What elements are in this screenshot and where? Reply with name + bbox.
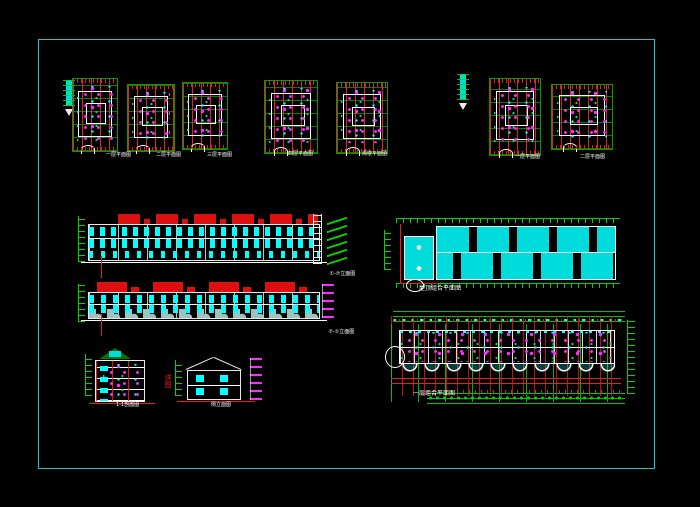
side-elevation-ruler — [175, 360, 182, 396]
bay-window-arc — [136, 145, 150, 154]
bay-window-arc — [385, 346, 405, 368]
front-elevation — [88, 214, 320, 266]
roof-slope-right — [214, 357, 242, 370]
cad-canvas[interactable]: 一层平面图 二层平面图 三层平面图 四层平面图 阁楼平面图 一层平面图 — [0, 0, 700, 507]
elevation-level-ruler — [78, 216, 85, 262]
wall-outline — [559, 95, 605, 136]
annotation-marks — [494, 87, 536, 145]
bay-window-arc — [346, 147, 360, 156]
dimension-line — [396, 218, 620, 223]
facade-windows — [88, 292, 320, 319]
plan-label-text: 二层平面图 — [580, 154, 605, 160]
roof-window — [109, 351, 121, 357]
plan-label-text: 一层平面图 — [106, 152, 131, 158]
floor-plan-7 — [551, 84, 613, 150]
side-facade — [187, 370, 241, 400]
annotation-marks — [269, 88, 313, 143]
elevation-label-text: ⑦-①立面图 — [329, 329, 355, 335]
annotation-marks — [401, 332, 613, 362]
wall-outline — [188, 94, 221, 136]
level-annotations — [327, 214, 347, 265]
wall-outline — [271, 93, 311, 139]
wall-outline — [496, 91, 534, 140]
plan-label-text: 三层平面图 — [207, 152, 232, 158]
room-partition — [281, 105, 305, 125]
ground-line — [81, 262, 327, 263]
roof-plan-label-text: 屋顶组合平面图 — [419, 285, 461, 292]
room-partition — [86, 103, 106, 123]
axis-grid-ladder — [313, 214, 322, 264]
section-drawing — [93, 348, 153, 406]
annotation-marks — [77, 86, 114, 141]
floor-plan-3 — [182, 82, 228, 150]
facade-windows — [88, 224, 320, 261]
plan-label-text: 四层平面图 — [288, 151, 313, 157]
section-cut-mark — [101, 256, 102, 278]
roof-plan — [392, 214, 622, 292]
room-partition — [196, 105, 216, 123]
elevation-label-text: ①-⑦立面图 — [330, 271, 356, 277]
balcony-arcs — [399, 364, 615, 376]
room-partition — [142, 107, 163, 125]
wall-outline — [343, 94, 381, 139]
dimension-text-stack — [322, 284, 334, 318]
rear-elevation — [88, 282, 320, 324]
bay-window-arc — [191, 143, 205, 152]
annotation-marks — [557, 91, 607, 140]
floor-plan-6 — [489, 78, 541, 156]
section-cut-mark — [101, 314, 102, 336]
roof-modules-lower — [436, 252, 616, 280]
bottom-dimension-rows — [427, 390, 625, 404]
roof-plan-ruler — [384, 230, 391, 270]
floor-plan-5 — [336, 82, 388, 154]
dimension-text-stack — [250, 358, 262, 400]
combined-plan-label-text: 一层组合平面图 — [413, 390, 455, 397]
north-arrow-icon — [459, 103, 467, 114]
ground-line — [81, 320, 327, 321]
room-partition — [352, 107, 375, 127]
room-partition — [570, 107, 598, 125]
annotation-marks — [103, 364, 139, 398]
section-level-ruler — [85, 354, 92, 396]
bay-window-arc — [563, 143, 577, 152]
wall-outline — [78, 91, 111, 137]
side-elevation — [183, 356, 247, 402]
plan-label-text: 一层平面图 — [515, 154, 540, 160]
annotation-marks — [132, 92, 171, 142]
annotation-marks — [187, 90, 224, 140]
red-note-text: 详图 — [164, 375, 172, 389]
bay-window-arc — [499, 149, 513, 158]
road-lines — [391, 378, 621, 384]
plan-label-text: 二层平面图 — [156, 152, 181, 158]
floor-plan-1 — [72, 78, 118, 152]
right-dimension-ruler — [627, 320, 635, 394]
bay-window-arc — [274, 147, 288, 156]
floor-plan-2 — [127, 84, 175, 152]
section-label-text: 1-1剖面图 — [116, 402, 139, 408]
roof-slope-left — [186, 357, 214, 370]
plan-label-text: 阁楼平面图 — [362, 151, 387, 157]
roof-slab-left — [404, 236, 434, 280]
side-elevation-label-text: 侧立面图 — [211, 402, 231, 408]
scale-legend-bar-right — [460, 74, 466, 100]
annotation-marks — [341, 90, 383, 143]
wall-outline — [134, 96, 169, 138]
elevation-level-ruler — [78, 284, 85, 322]
bay-window-arc — [81, 145, 95, 154]
room-partition — [505, 105, 528, 126]
axis-line — [400, 224, 401, 284]
roof-modules-upper — [436, 226, 616, 254]
floor-plan-4 — [264, 80, 318, 154]
